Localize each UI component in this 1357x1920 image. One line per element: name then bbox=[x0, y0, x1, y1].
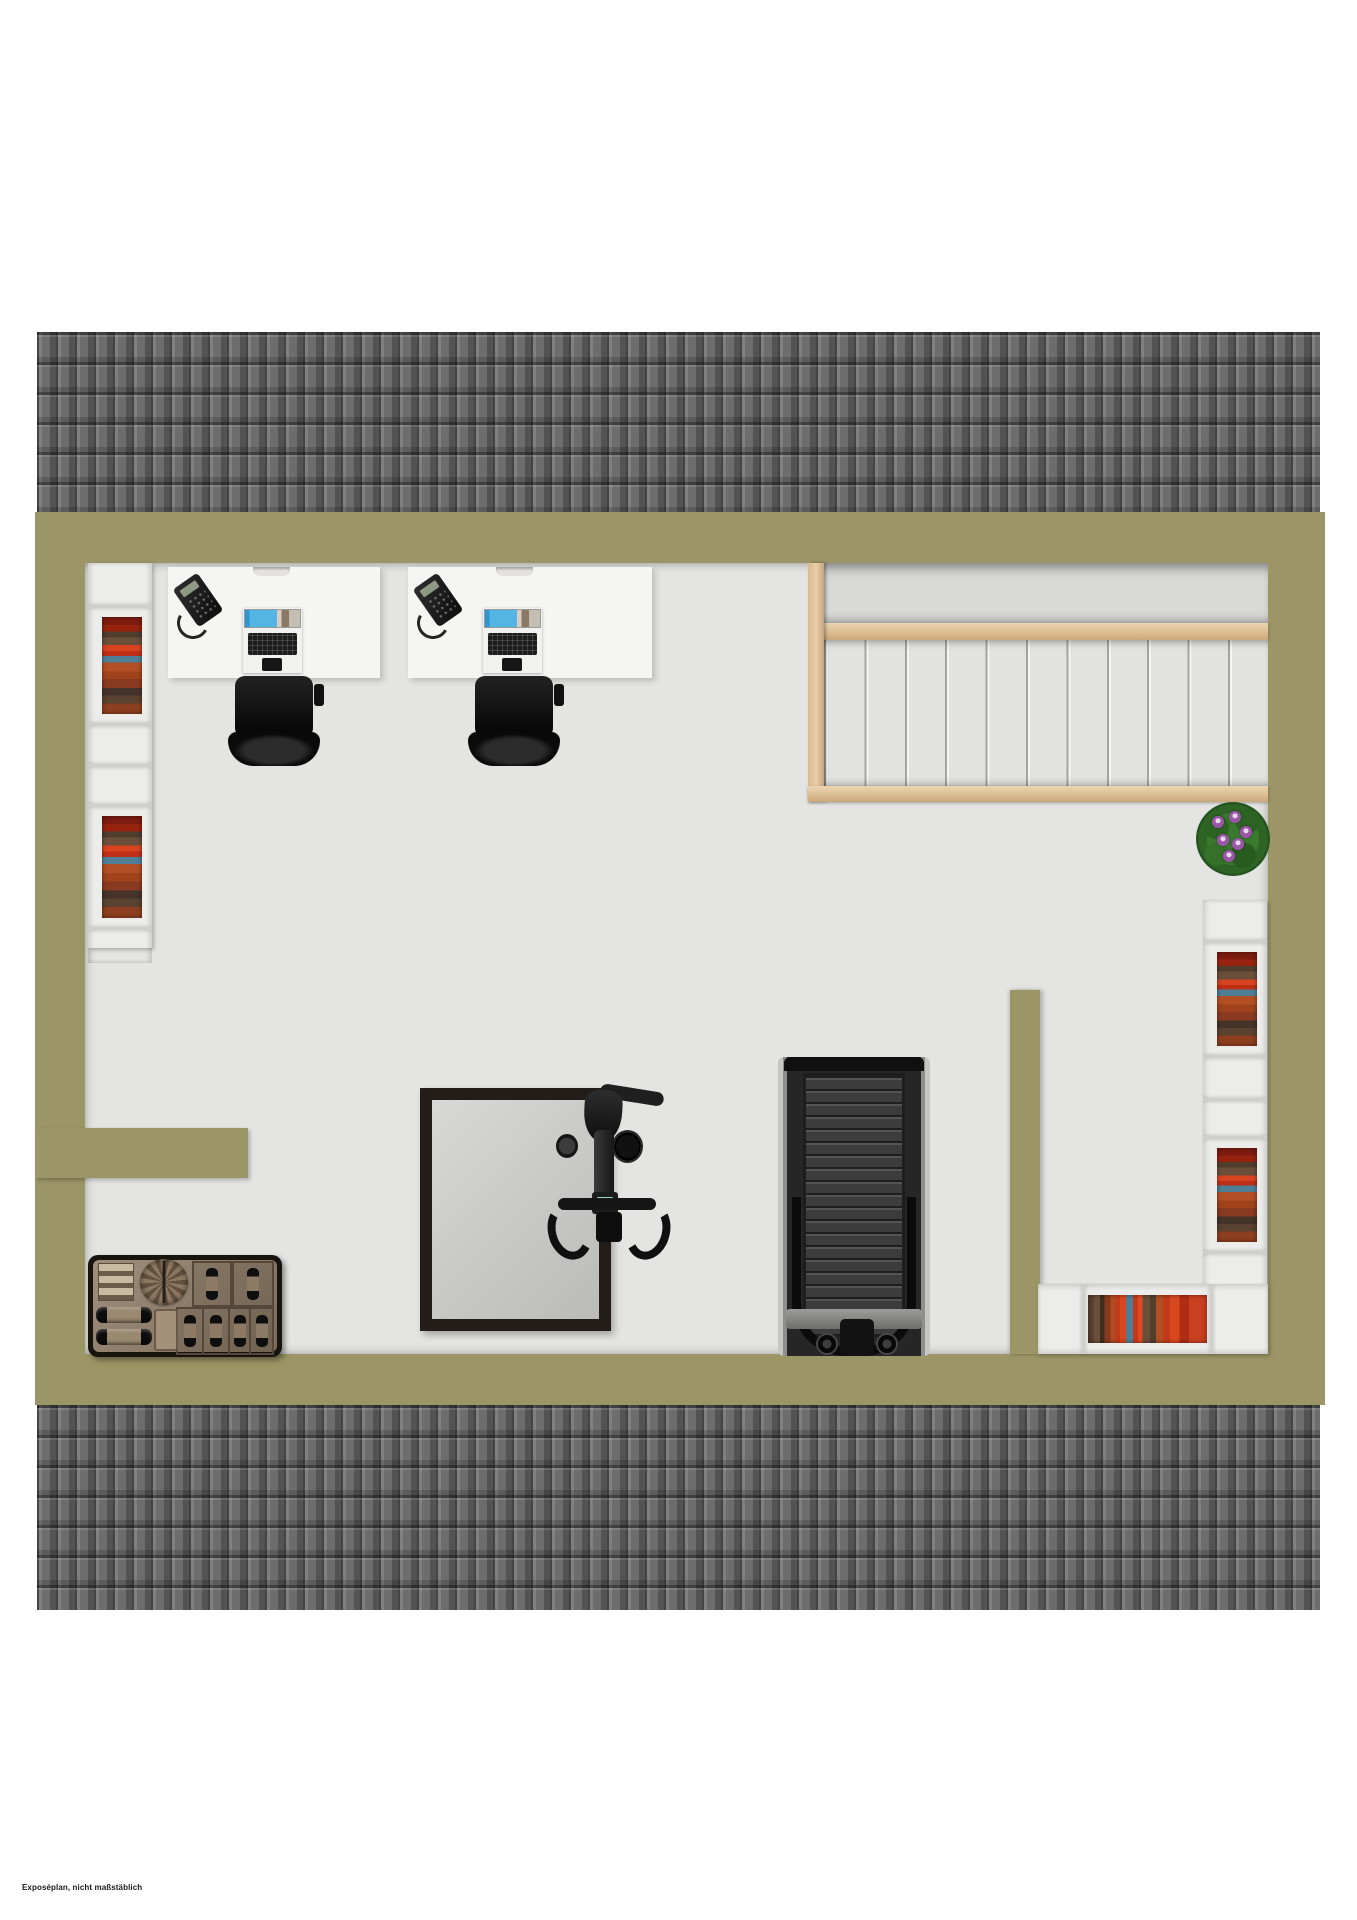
dumbbell-compartment bbox=[232, 1261, 274, 1307]
chair-backrest bbox=[475, 676, 553, 738]
plan-disclaimer: Exposéplan, nicht maßstäblich bbox=[22, 1883, 142, 1892]
dumbbell-icon bbox=[256, 1315, 268, 1347]
rolled-towels bbox=[98, 1263, 134, 1301]
shelf-section-empty bbox=[1203, 900, 1267, 943]
sideboard-shelf bbox=[1038, 1284, 1268, 1354]
mouse bbox=[502, 658, 522, 671]
bike-pedal bbox=[556, 1134, 578, 1158]
barbell-icon bbox=[96, 1329, 152, 1345]
shelf-section-empty bbox=[88, 767, 152, 807]
bookshelf-left bbox=[88, 563, 152, 948]
dumbbell-icon bbox=[184, 1315, 196, 1347]
treadmill bbox=[778, 1057, 930, 1356]
bookshelf-right bbox=[1203, 900, 1267, 1284]
dumbbell-compartment bbox=[228, 1307, 251, 1355]
shelf-section-empty bbox=[88, 563, 152, 608]
chair-armrest bbox=[314, 684, 324, 706]
office-chair-1 bbox=[228, 676, 320, 766]
bike-base bbox=[596, 1212, 622, 1242]
books-stack bbox=[1088, 1295, 1207, 1343]
books-stack bbox=[1217, 1148, 1257, 1242]
wall-stub-middle bbox=[1010, 990, 1040, 1354]
plant-flower bbox=[1232, 838, 1244, 850]
shelf-section-empty bbox=[1213, 1284, 1268, 1354]
desk-phone-2 bbox=[416, 575, 466, 637]
workstation-1 bbox=[243, 608, 302, 673]
desk-phone-1 bbox=[176, 575, 226, 637]
shelf-section-empty bbox=[88, 930, 152, 963]
storage-bench bbox=[88, 1255, 282, 1357]
treadmill-wheel bbox=[878, 1335, 896, 1353]
shelf-section-books bbox=[88, 807, 152, 930]
shelf-section-empty bbox=[1203, 1058, 1267, 1101]
monitor-screen bbox=[244, 609, 301, 628]
plant-flower bbox=[1229, 811, 1241, 823]
dumbbell-compartment bbox=[202, 1307, 230, 1355]
potted-plant bbox=[1196, 802, 1270, 876]
monitor-screen bbox=[484, 609, 541, 628]
dumbbell-icon bbox=[234, 1315, 246, 1347]
chair-backrest bbox=[235, 676, 313, 738]
dumbbell-icon bbox=[247, 1268, 259, 1300]
plant-flower bbox=[1217, 834, 1229, 846]
plant-flower bbox=[1212, 816, 1224, 828]
roof-tiles-bottom bbox=[37, 1405, 1320, 1610]
shelf-section-books bbox=[88, 608, 152, 726]
office-chair-2 bbox=[468, 676, 560, 766]
books-stack bbox=[102, 816, 142, 918]
shelf-section-empty bbox=[88, 726, 152, 767]
stairs-rail-bottom bbox=[808, 786, 1268, 802]
storage-tray bbox=[154, 1309, 178, 1351]
round-basket bbox=[140, 1259, 188, 1305]
cable-notch bbox=[496, 567, 533, 576]
dumbbell-icon bbox=[206, 1268, 218, 1300]
chair-seat bbox=[468, 732, 560, 766]
bike-flywheel bbox=[614, 1132, 641, 1161]
stairs-landing bbox=[824, 563, 1268, 623]
chair-seat bbox=[228, 732, 320, 766]
treadmill-wheel bbox=[818, 1335, 836, 1353]
shelf-section-books bbox=[1203, 943, 1267, 1058]
keyboard bbox=[488, 633, 537, 655]
stairs-stringer bbox=[808, 563, 824, 802]
workstation-2 bbox=[483, 608, 542, 673]
exercise-bike bbox=[548, 1086, 670, 1262]
dumbbell-compartment bbox=[192, 1261, 232, 1307]
shelf-section-empty bbox=[1203, 1101, 1267, 1139]
shelf-section-books bbox=[1203, 1139, 1267, 1254]
plant-flower bbox=[1240, 826, 1252, 838]
stairs-steps bbox=[824, 640, 1268, 786]
wall-stub-left bbox=[35, 1128, 248, 1178]
dumbbell-icon bbox=[210, 1315, 222, 1347]
mouse bbox=[262, 658, 282, 671]
keyboard bbox=[248, 633, 297, 655]
shelf-section-empty bbox=[1038, 1284, 1085, 1354]
dumbbell-compartment bbox=[249, 1307, 274, 1355]
books-stack bbox=[1217, 952, 1257, 1046]
barbell-icon bbox=[96, 1307, 152, 1323]
dumbbell-compartment bbox=[176, 1307, 204, 1355]
cable-notch bbox=[253, 567, 290, 576]
stairs-rail-top bbox=[824, 623, 1268, 640]
shelf-section-books bbox=[1085, 1284, 1213, 1354]
books-stack bbox=[102, 617, 142, 714]
plant-flower bbox=[1223, 850, 1235, 862]
floor-plan-canvas: Exposéplan, nicht maßstäblich bbox=[0, 0, 1357, 1920]
chair-armrest bbox=[554, 684, 564, 706]
treadmill-motor-housing bbox=[840, 1319, 874, 1356]
roof-tiles-top bbox=[37, 332, 1320, 512]
